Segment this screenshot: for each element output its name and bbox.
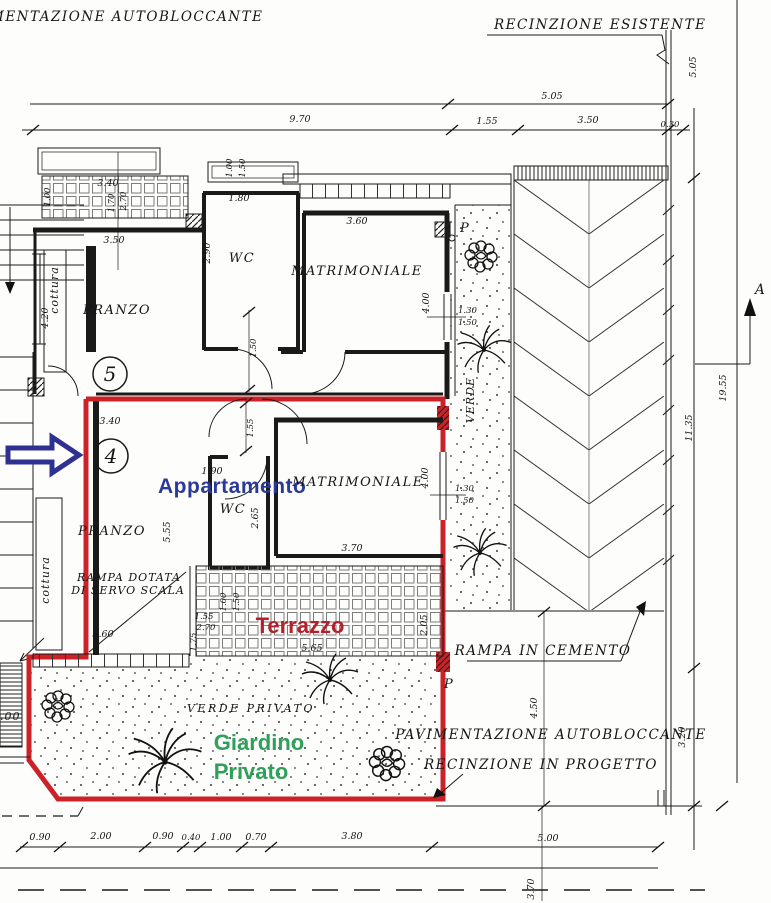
dim-350-top: 3.50: [577, 115, 598, 126]
dim-100-b: 1.00: [210, 832, 231, 843]
dim-270-terr: 2.70: [196, 623, 217, 633]
dim-040: 0.40: [182, 833, 202, 843]
wc5-balcony: [208, 162, 298, 182]
dim-100-left-edge: 1.00: [0, 710, 21, 723]
dim-1135: 11.35: [684, 414, 695, 441]
floor-plan-page: MENTAZIONE AUTOBLOCCANTE RECINZIONE ESIS…: [0, 0, 771, 903]
apartment-5: 5 3.40 1.00 1.70 2.70 3.50 1.00 1.50 1.8…: [28, 148, 511, 399]
ramp-top-railing: [514, 166, 668, 180]
dim-205: 2.05: [419, 614, 430, 636]
dim-370-m4: 3.70: [341, 543, 362, 554]
boundary-ladder: [0, 352, 44, 661]
dim-155-terr: 1.55: [195, 612, 214, 622]
hall-door-arc-1: [303, 352, 345, 394]
dim-360-m5: 3.60: [346, 216, 367, 227]
label-appartamento: Appartamento: [158, 475, 306, 498]
dim-100-t5: 1.00: [43, 187, 53, 207]
unit4-number: 4: [104, 444, 118, 468]
label-verde-privato: VERDE PRIVATO: [187, 702, 315, 715]
apt4-entry-arc-1: [209, 399, 247, 437]
dim-350-apt5: 3.50: [103, 235, 124, 246]
dim-070: 0.70: [245, 832, 266, 843]
label-cottura4: cottura: [39, 556, 52, 604]
dim-150-terr: 1.50: [232, 592, 242, 612]
label-giardino: Giardino: [214, 730, 304, 755]
label-terrazzo: Terrazzo: [256, 613, 345, 638]
dim-400-m4: 4.00: [420, 467, 431, 489]
dim-100-wc5: 1.00: [225, 158, 235, 178]
dim-170: 1.70: [107, 193, 117, 213]
dim-360-a4: 3.60: [92, 629, 113, 640]
section-arrow-icon: [744, 298, 756, 316]
dim-150-door5: 1.50: [249, 338, 259, 358]
apt5-entry-door-arc: [48, 366, 78, 396]
dim-290: 2.90: [202, 242, 213, 264]
dim-970: 9.70: [289, 114, 310, 125]
pavement-tile-row: [33, 654, 189, 667]
left-wall-section: [0, 663, 22, 747]
top-annotations: MENTAZIONE AUTOBLOCCANTE RECINZIONE ESIS…: [0, 9, 706, 64]
marker-p-bottom: P: [443, 677, 454, 692]
dim-190: 1.90: [201, 466, 222, 477]
dim-265: 2.65: [250, 507, 261, 529]
label-pranzo5: PRANZO: [82, 303, 151, 318]
dim-150-w4: 1.50: [455, 496, 475, 506]
label-rampa-dotata-2: DI SERVO SCALA: [70, 584, 185, 597]
dim-565: 5.65: [301, 643, 322, 654]
dim-420: 4.20: [40, 307, 51, 329]
garden: VERDE PRIVATO Giardino Privato: [31, 654, 436, 796]
label-rampa-cemento: RAMPA IN CEMENTO: [454, 643, 632, 659]
dim-150-wc5: 1.50: [238, 158, 248, 178]
label-pavimentazione-bottom: PAVIMENTAZIONE AUTOBLOCCANTE: [394, 727, 706, 743]
dim-180: 1.80: [228, 193, 249, 204]
dim-130-w4: 1.30: [455, 484, 475, 494]
dim-340-a4: 3.40: [99, 416, 120, 427]
dim-030: 0.30: [661, 120, 681, 130]
label-recinzione-esistente: RECINZIONE ESISTENTE: [493, 17, 706, 33]
dim-200: 2.00: [89, 831, 111, 842]
floor-plan-svg: MENTAZIONE AUTOBLOCCANTE RECINZIONE ESIS…: [0, 0, 771, 903]
section-marker-a: A: [695, 282, 766, 364]
dim-175: 1.75: [189, 633, 199, 652]
fence-hatch-ticks: [663, 205, 674, 565]
dim-370-bottom: 3.70: [526, 878, 537, 899]
dim-450: 4.50: [529, 697, 540, 719]
dim-155-a4: 1.55: [246, 419, 256, 438]
label-section-a: A: [753, 282, 766, 298]
dim-100-terr: 1.00: [219, 592, 229, 612]
unit5-number: 5: [104, 362, 117, 386]
dim-500: 5.00: [537, 833, 558, 844]
stairs-down-arrow-icon: [5, 282, 15, 294]
dim-380: 3.80: [341, 831, 362, 842]
label-rampa-dotata-1: RAMPA DOTATA: [76, 571, 181, 584]
label-matrimoniale5: MATRIMONIALE: [290, 264, 423, 279]
label-verde: VERDE: [464, 377, 477, 423]
apt5-inner-wall: [86, 246, 96, 352]
recinzione-leader: [657, 35, 669, 64]
unit4-pointer-arrow-icon: [8, 437, 79, 473]
dim-505-top: 5.05: [541, 91, 562, 102]
dim-340-t5: 3.40: [97, 178, 118, 189]
verde-strip: VERDE: [450, 180, 511, 610]
label-pranzo4: PRANZO: [77, 524, 146, 539]
label-wc4: WC: [220, 502, 246, 517]
label-recinzione-progetto: RECINZIONE IN PROGETTO: [423, 757, 658, 773]
dim-090-b: 0.90: [152, 831, 173, 842]
label-privato: Privato: [214, 759, 289, 784]
dim-400-m5: 4.00: [421, 292, 432, 314]
dim-555: 5.55: [162, 521, 173, 542]
walkway-strip: [283, 174, 511, 184]
dim-1955: 19.55: [718, 374, 729, 401]
label-cottura5: cottura: [48, 266, 61, 314]
top-dimension-lines: 5.05 9.70 1.55 3.50 0.30: [22, 91, 690, 135]
label-wc5: WC: [229, 251, 255, 266]
label-matrimoniale4: MATRIMONIALE: [291, 475, 424, 490]
dim-090-a: 0.90: [29, 832, 50, 843]
dim-270-t5: 2.70: [119, 191, 129, 212]
dim-505-right: 5.05: [688, 56, 699, 77]
dim-155-top: 1.55: [476, 116, 497, 127]
label-pavimentazione-top: MENTAZIONE AUTOBLOCCANTE: [0, 9, 263, 25]
